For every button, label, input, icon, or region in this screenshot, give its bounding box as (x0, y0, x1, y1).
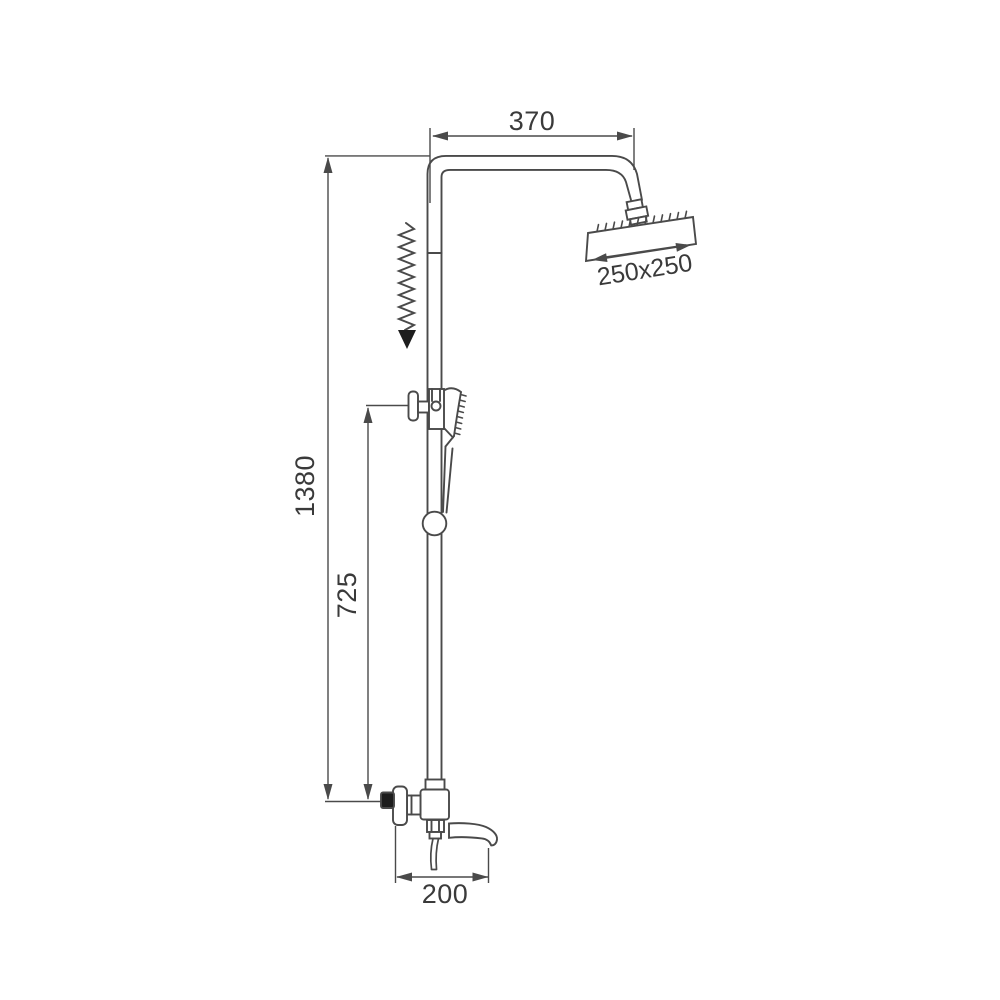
shower-hose (431, 839, 439, 870)
hand-shower (443, 388, 466, 512)
arrowhead-right (473, 873, 489, 882)
hose-right (436, 839, 438, 870)
arm-inner-line (442, 170, 632, 780)
hand-shower-top (443, 388, 461, 392)
arrowhead-down (364, 784, 373, 800)
arm-width-label: 370 (509, 106, 556, 136)
handle-stem (407, 796, 421, 815)
tub-spout (449, 823, 497, 845)
dim-arm-width (430, 128, 634, 203)
slider-bracket (409, 389, 445, 429)
pivot-circle (432, 402, 441, 411)
handle-left (443, 447, 446, 513)
hose-nut (427, 820, 444, 832)
handle-right (447, 449, 453, 513)
spout-length-label: 200 (422, 879, 469, 909)
dim-bracket-height (364, 406, 410, 801)
zigzag-down-arrow-icon (398, 223, 416, 349)
knob-stem (418, 402, 429, 413)
mixer-valve (381, 780, 449, 839)
valve-body (421, 790, 450, 820)
total-height-label: 1380 (290, 455, 320, 517)
zigzag-line (399, 223, 414, 330)
arrowhead-down (324, 784, 333, 800)
arrowhead-left (432, 132, 448, 141)
pipe-collar (426, 780, 445, 790)
wall-flange (393, 787, 407, 826)
hose-fitting (430, 832, 442, 839)
arrowhead-right (617, 132, 633, 141)
bracket-height-label: 725 (332, 572, 362, 619)
hose-left (431, 839, 433, 870)
shower-system-technical-drawing: 370 250x250 1380 725 200 (0, 0, 1000, 1000)
drawing-canvas: 370 250x250 1380 725 200 (0, 0, 1000, 1000)
valve-handle-knob (381, 793, 394, 809)
arrowhead-left (396, 873, 412, 882)
arrowhead-up (324, 157, 333, 173)
hose-ball-joint (423, 512, 447, 536)
hand-shower-nozzles (454, 395, 466, 435)
arrowhead-up (364, 407, 373, 423)
slider-knob (409, 392, 419, 421)
down-arrowhead (398, 330, 416, 349)
